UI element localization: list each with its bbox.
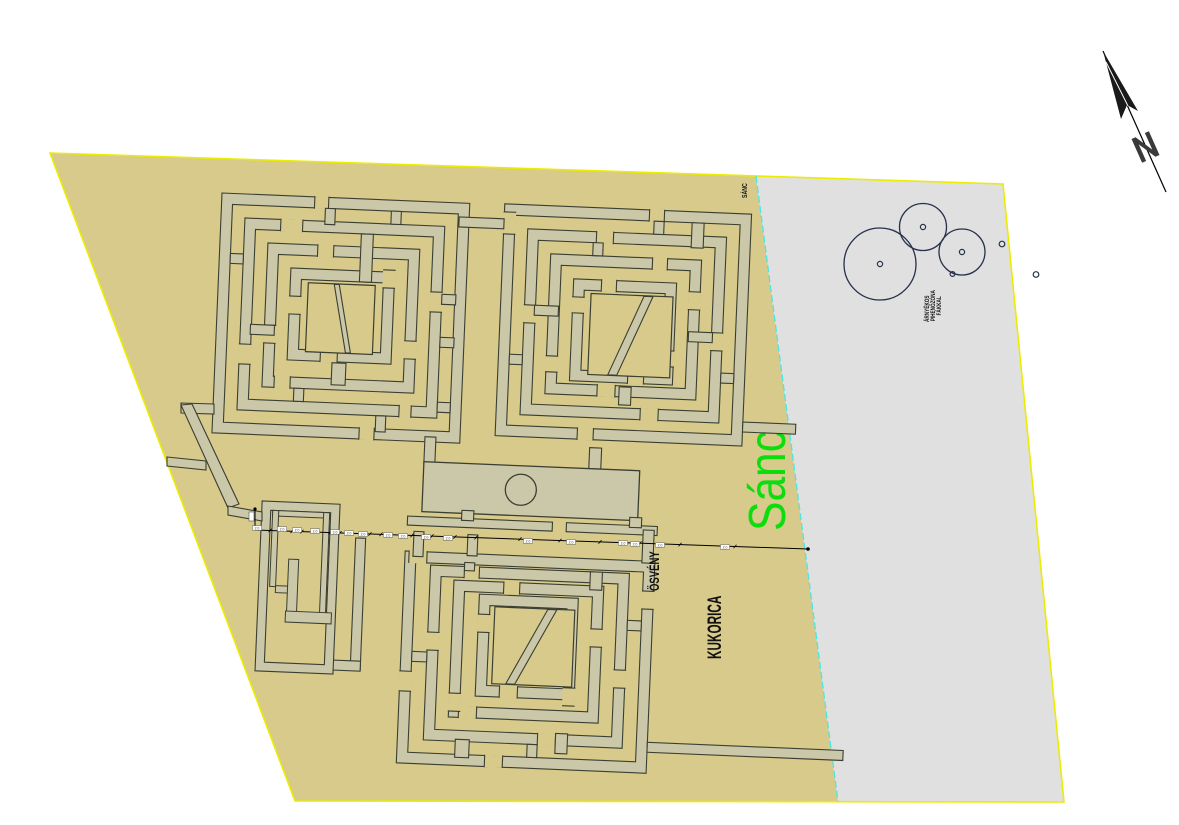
svg-text:2.0: 2.0: [621, 542, 626, 546]
svg-text:2.0: 2.0: [295, 529, 300, 533]
svg-text:2.0: 2.0: [361, 533, 366, 537]
svg-text:2.0: 2.0: [424, 536, 429, 540]
svg-text:ÖSVÉNY: ÖSVÉNY: [645, 551, 663, 591]
svg-text:2.0: 2.0: [633, 543, 638, 547]
svg-text:2.0: 2.0: [386, 534, 391, 538]
svg-text:2.0: 2.0: [569, 541, 574, 545]
svg-text:KUKORICA: KUKORICA: [705, 596, 725, 659]
svg-text:FÁKKAL: FÁKKAL: [935, 296, 943, 316]
svg-text:2.0: 2.0: [401, 535, 406, 539]
svg-text:Sánc: Sánc: [739, 430, 797, 531]
svg-text:2.0: 2.0: [313, 530, 318, 534]
svg-text:2.0: 2.0: [658, 544, 663, 548]
svg-text:2.0: 2.0: [526, 540, 531, 544]
svg-text:SÁNC: SÁNC: [741, 183, 749, 198]
svg-text:2.0: 2.0: [333, 531, 338, 535]
svg-text:2.0: 2.0: [446, 537, 451, 541]
svg-text:2.0: 2.0: [723, 546, 728, 550]
svg-text:2.0: 2.0: [255, 527, 260, 531]
svg-text:2.0: 2.0: [280, 528, 285, 532]
svg-text:2.0: 2.0: [347, 532, 352, 536]
